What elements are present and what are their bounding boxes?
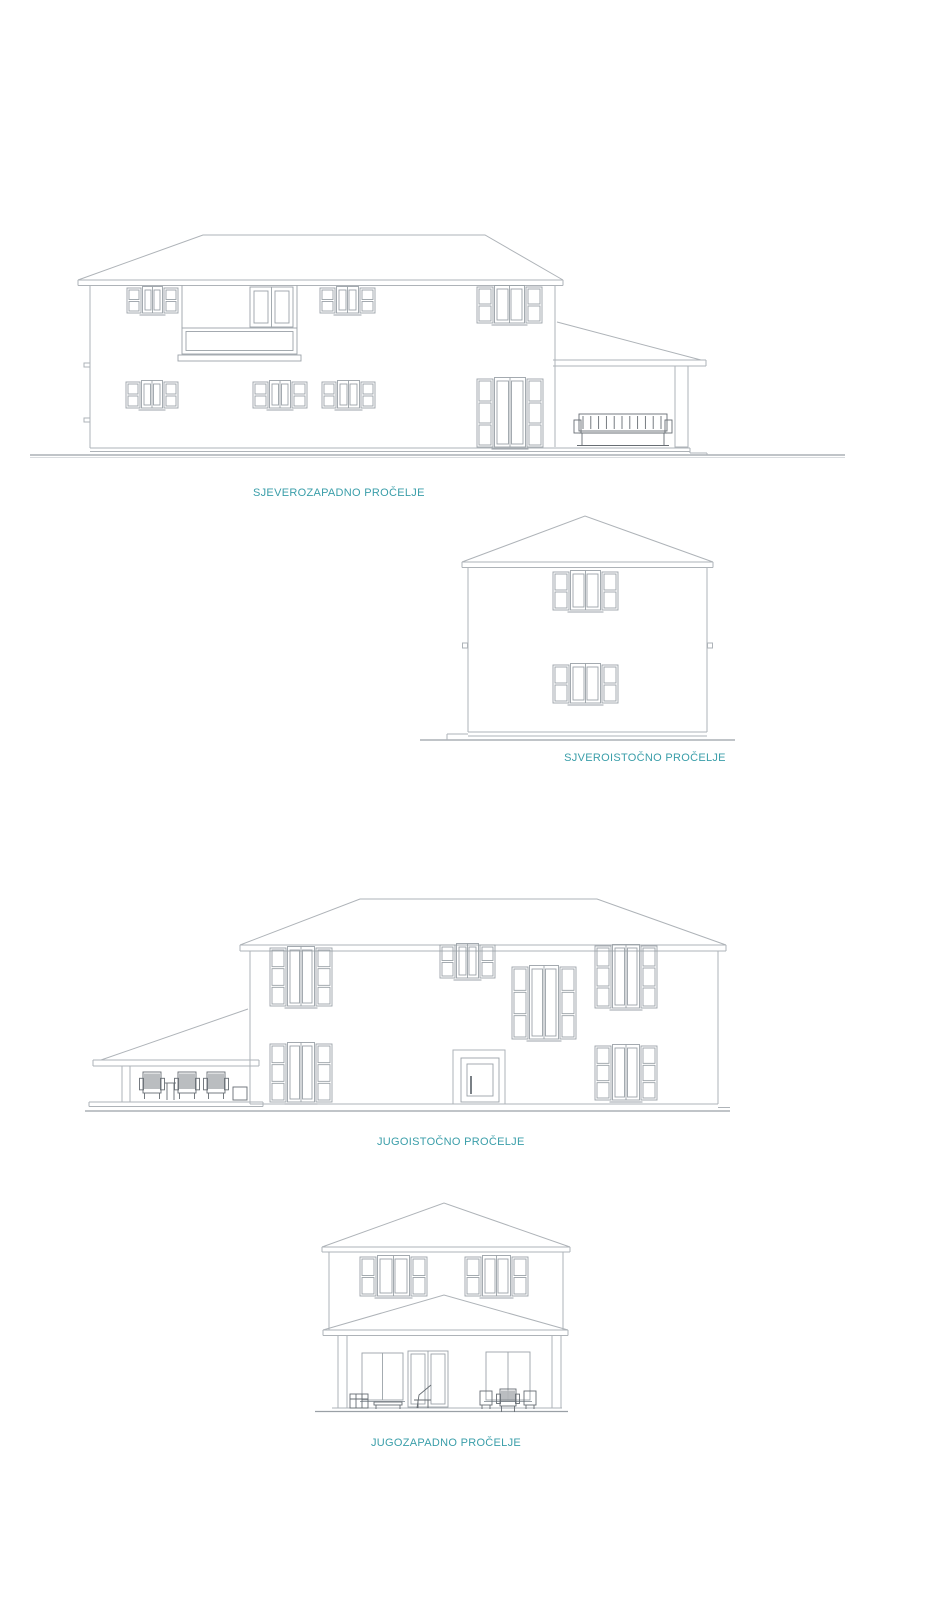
elevation-drawing-northwest bbox=[30, 215, 845, 460]
elevation-northwest bbox=[30, 215, 845, 460]
elevation-drawing-northeast bbox=[420, 510, 735, 742]
elevation-label-southeast: JUGOISTOČNO PROČELJE bbox=[377, 1136, 519, 1149]
elevation-southeast bbox=[85, 868, 730, 1118]
elevation-drawing-southwest bbox=[310, 1188, 572, 1418]
elevation-label-northeast: SJVEROISTOČNO PROČELJE bbox=[557, 752, 733, 765]
elevation-drawing-southeast bbox=[85, 868, 730, 1118]
drawing-sheet: SJEVEROZAPADNO PROČELJE SJVEROISTOČNO PR… bbox=[0, 0, 948, 1600]
elevation-northeast bbox=[420, 510, 735, 742]
elevation-label-northwest: SJEVEROZAPADNO PROČELJE bbox=[253, 487, 415, 500]
elevation-label-southwest: JUGOZAPADNO PROČELJE bbox=[371, 1437, 521, 1450]
elevation-southwest bbox=[310, 1188, 572, 1418]
